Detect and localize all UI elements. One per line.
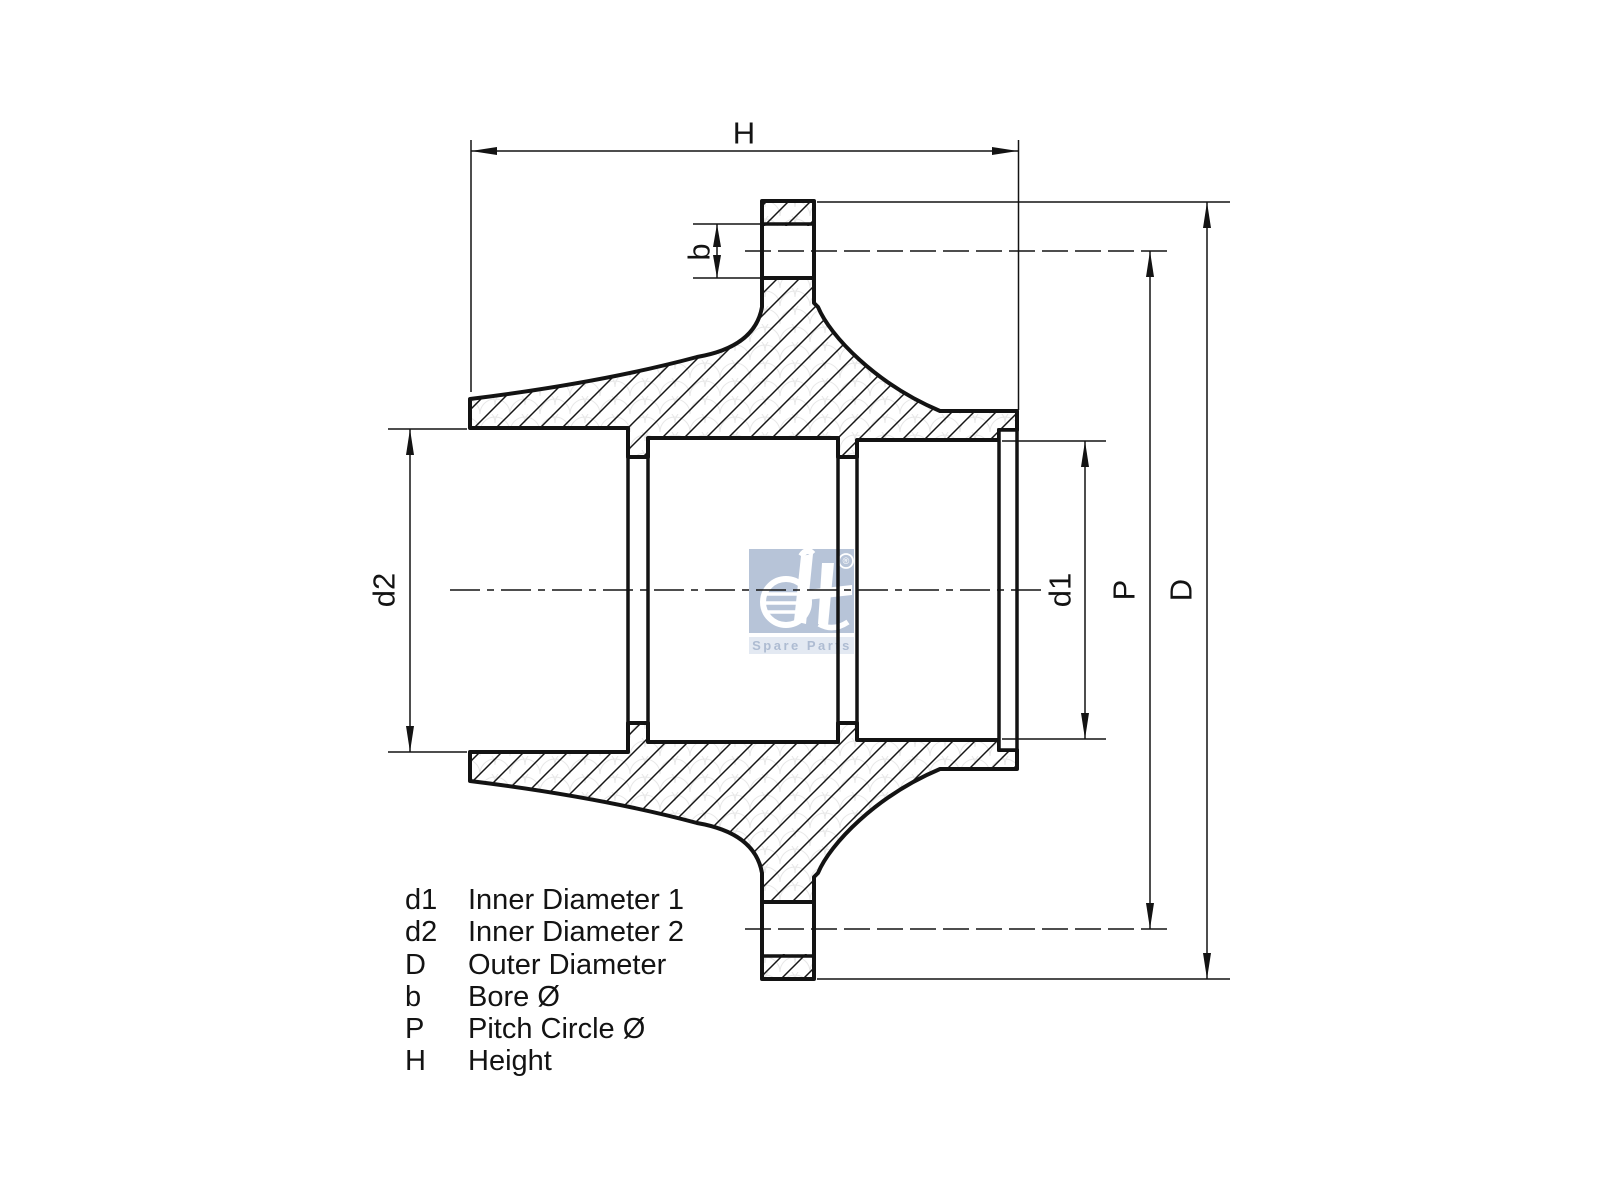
- dim-label-outer-diameter: D: [1164, 579, 1199, 601]
- dim-label-bore: b: [682, 243, 717, 260]
- legend-description: Inner Diameter 2: [468, 916, 684, 948]
- legend: d1 Inner Diameter 1 d2 Inner Diameter 2 …: [405, 884, 684, 1078]
- legend-symbol: H: [405, 1045, 468, 1077]
- legend-symbol: d2: [405, 916, 468, 948]
- legend-description: Bore Ø: [468, 981, 560, 1013]
- legend-symbol: P: [405, 1013, 468, 1045]
- hub-cross-section-drawing: ® Spare Parts: [0, 0, 1600, 1200]
- hub-upper-half-outline: [470, 201, 1017, 457]
- dim-label-inner-diameter-2: d2: [367, 573, 402, 607]
- legend-description: Outer Diameter: [468, 949, 666, 981]
- legend-description: Inner Diameter 1: [468, 884, 684, 916]
- legend-symbol: b: [405, 981, 468, 1013]
- dim-label-inner-diameter-1: d1: [1043, 573, 1078, 607]
- legend-row: D Outer Diameter: [405, 949, 684, 981]
- dim-label-height: H: [733, 116, 755, 151]
- legend-description: Pitch Circle Ø: [468, 1013, 645, 1045]
- legend-symbol: D: [405, 949, 468, 981]
- legend-row: H Height: [405, 1045, 684, 1077]
- legend-description: Height: [468, 1045, 552, 1077]
- registered-mark: ®: [843, 556, 850, 566]
- dim-label-pitch-circle: P: [1107, 580, 1142, 601]
- legend-row: d1 Inner Diameter 1: [405, 884, 684, 916]
- legend-row: b Bore Ø: [405, 981, 684, 1013]
- legend-symbol: d1: [405, 884, 468, 916]
- legend-row: P Pitch Circle Ø: [405, 1013, 684, 1045]
- technical-drawing-page: ® Spare Parts: [0, 0, 1600, 1200]
- legend-row: d2 Inner Diameter 2: [405, 916, 684, 948]
